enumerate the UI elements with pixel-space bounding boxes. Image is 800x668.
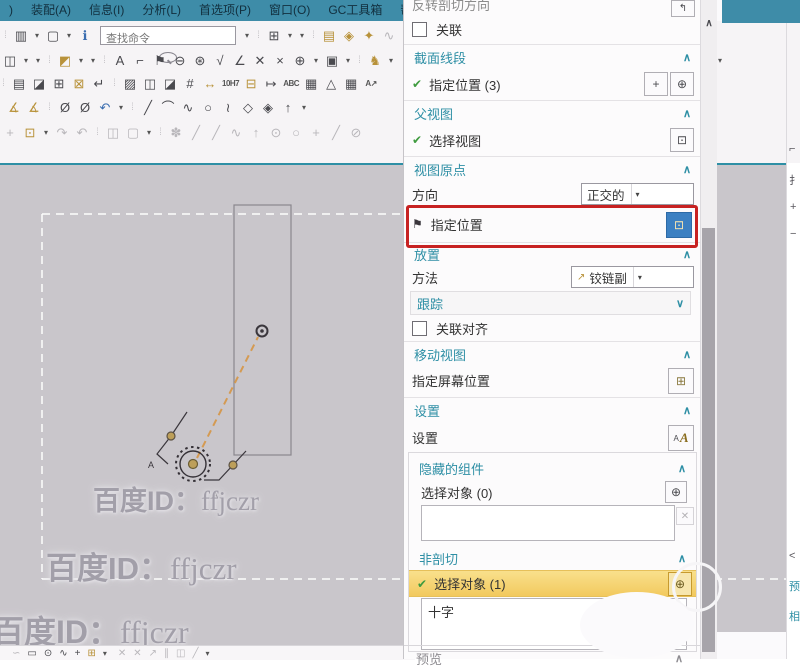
edge-divider bbox=[786, 23, 787, 659]
tag-icon[interactable]: ◈ bbox=[341, 25, 357, 46]
watermark-id: ffjczr bbox=[170, 551, 237, 586]
flag-icon: ⚑ bbox=[412, 217, 423, 231]
circle-dot-icon[interactable]: ⊙ bbox=[44, 648, 52, 659]
associate-align-label: 关联对齐 bbox=[436, 319, 488, 338]
edge-icon[interactable]: 扌 bbox=[789, 172, 800, 188]
specify-screen-position-label: 指定屏幕位置 bbox=[412, 371, 490, 390]
section-title: 隐藏的组件 bbox=[419, 459, 484, 478]
toolbar-icon: ⁞ bbox=[101, 50, 108, 71]
toolbar-icon[interactable]: ▾ bbox=[145, 122, 153, 143]
collapse-chevron-icon[interactable]: ∧ bbox=[683, 404, 691, 417]
undo-icon[interactable]: ↶ bbox=[97, 97, 113, 118]
copy-view-icon[interactable]: ◫ bbox=[105, 122, 121, 143]
point-icon[interactable]: ⊕ bbox=[292, 50, 308, 71]
toolbar-icon[interactable]: ▾ bbox=[42, 122, 50, 143]
section-header-move-view[interactable]: 移动视图 ∧ bbox=[404, 341, 701, 366]
reverse-direction-button[interactable]: ↰ bbox=[671, 0, 695, 17]
polygon-icon[interactable]: ◇ bbox=[240, 97, 256, 118]
section-header-parent-view[interactable]: 父视图 ∧ bbox=[404, 100, 701, 125]
balloon-grid-icon[interactable]: ⊞ bbox=[51, 73, 67, 94]
offset-icon[interactable]: ╱ bbox=[192, 648, 198, 659]
section-header-settings[interactable]: 设置 ∧ bbox=[404, 397, 701, 422]
menu-item[interactable]: 信息(I) bbox=[80, 0, 133, 21]
specify-location-row: ⚑ 指定位置 ⊡ bbox=[404, 208, 701, 240]
menu-item[interactable]: ) bbox=[0, 0, 22, 21]
watermark-id: ffjczr bbox=[201, 486, 259, 516]
toolbar-icon: ⁞ bbox=[255, 25, 262, 46]
toolbar-icon[interactable]: ▾ bbox=[344, 50, 352, 71]
snap-endpoint-icon[interactable]: ╱ bbox=[188, 122, 204, 143]
toolbar-icon[interactable]: ▾ bbox=[117, 97, 125, 118]
zoom-out-icon[interactable]: ⊖ bbox=[172, 50, 188, 71]
method-dropdown[interactable]: ↗ 铰链副 ▾ bbox=[571, 266, 694, 288]
section-title: 截面线段 bbox=[414, 48, 466, 67]
toolbar-icon: ⁞ bbox=[356, 50, 363, 71]
collapse-chevron-icon[interactable]: ∧ bbox=[678, 552, 686, 565]
toolbar-icon: ⁞ bbox=[94, 122, 101, 143]
diameter-icon[interactable]: Ø bbox=[57, 97, 73, 118]
edge-icon[interactable]: − bbox=[790, 228, 800, 240]
collapse-left-icon[interactable]: < bbox=[789, 550, 800, 562]
spline-icon[interactable]: ≀ bbox=[220, 97, 236, 118]
toolbar-row-4: ∡∡⁞ØØ↶▾⁞╱⌒∿○≀◇◈↑▾ bbox=[6, 96, 308, 119]
point-constructor-button[interactable]: ⊕ bbox=[670, 72, 694, 96]
text-icon[interactable]: A bbox=[112, 50, 128, 71]
nx-application-window: { "colors":{"accent_teal":"#2e8fa5","men… bbox=[0, 0, 800, 659]
section-header-view-origin[interactable]: 视图原点 ∧ bbox=[404, 156, 701, 181]
scroll-up-icon[interactable]: ∧ bbox=[701, 18, 717, 29]
edge-icon[interactable]: + bbox=[790, 201, 800, 213]
leader-text-icon[interactable]: A↗ bbox=[363, 73, 379, 94]
redo-rotate-icon[interactable]: ↷ bbox=[54, 122, 70, 143]
component-icon[interactable]: ◩ bbox=[57, 50, 73, 71]
fastener-icon[interactable]: ⌐ bbox=[132, 50, 148, 71]
collapse-chevron-icon[interactable]: ∧ bbox=[675, 652, 683, 665]
method-row: 方法 ↗ 铰链副 ▾ bbox=[404, 264, 701, 290]
reverse-direction-label: 反转剖切方向 bbox=[412, 0, 490, 14]
font-icon-small: A bbox=[673, 434, 678, 443]
mirror-icon[interactable]: ◫ bbox=[176, 648, 185, 659]
collapse-chevron-icon[interactable]: ∧ bbox=[683, 348, 691, 361]
slope-dim-icon[interactable]: ∡ bbox=[6, 97, 22, 118]
section-header-placement[interactable]: 放置 ∧ bbox=[404, 242, 701, 265]
toolbar-icon[interactable]: ▾ bbox=[300, 97, 308, 118]
trim-icon[interactable]: × bbox=[272, 50, 288, 71]
section-title: 父视图 bbox=[414, 104, 453, 123]
shaded-view-icon[interactable]: ◪ bbox=[31, 73, 47, 94]
info-tag-icon[interactable]: ℹ bbox=[77, 25, 93, 46]
select-view-label: 选择视图 bbox=[429, 131, 481, 150]
section-header-hidden-components[interactable]: 隐藏的组件 ∧ bbox=[409, 456, 696, 480]
chevron-down-icon: ▾ bbox=[633, 267, 646, 287]
chevron-down-icon: ▾ bbox=[631, 184, 644, 204]
select-object-1-label: 选择对象 (1) bbox=[434, 574, 506, 593]
undo-rotate-icon[interactable]: ↶ bbox=[74, 122, 90, 143]
base-view-icon[interactable]: ◫ bbox=[142, 73, 158, 94]
linear-dim-icon[interactable]: ↔ bbox=[202, 73, 218, 94]
select-object-0-row: 选择对象 (0) ⊕ bbox=[409, 479, 696, 505]
toolbar-row-5: +⊡▾↷↶⁞◫▢▾⁞✽╱╱∿↑⊙○+╱⊘ bbox=[2, 121, 364, 144]
parallel-icon[interactable]: ∥ bbox=[164, 648, 169, 659]
select-object-1-button[interactable]: ⊕ bbox=[668, 572, 692, 596]
layers-icon[interactable]: ▤ bbox=[321, 25, 337, 46]
select-view-row: ✔ 选择视图 ⊡ bbox=[404, 126, 701, 154]
preview-row-cut: 预览 ∧ bbox=[404, 648, 701, 668]
panel-divider bbox=[404, 645, 701, 646]
dropdown-arrow-icon[interactable]: ▾ bbox=[65, 25, 73, 46]
snap-circle-icon[interactable]: ○ bbox=[288, 122, 304, 143]
corner-arrow-icon[interactable]: ↵ bbox=[91, 73, 107, 94]
zoom-help-icon[interactable]: ⊛ bbox=[192, 50, 208, 71]
menu-item[interactable]: 窗口(O) bbox=[260, 0, 319, 21]
plane-icon[interactable]: ◈ bbox=[260, 97, 276, 118]
toolbar-icon[interactable]: ▾ bbox=[286, 25, 294, 46]
toolbar-icon[interactable]: ▾ bbox=[89, 50, 97, 71]
toolbar-icon[interactable]: ▾ bbox=[34, 50, 42, 71]
select-view-button[interactable]: ⊡ bbox=[670, 128, 694, 152]
studio-spline-icon[interactable]: ∿ bbox=[59, 648, 67, 659]
note-text-icon[interactable]: ABC bbox=[283, 73, 299, 94]
image-icon[interactable]: ▣ bbox=[324, 50, 340, 71]
command-finder bbox=[100, 26, 236, 45]
pattern-icon[interactable]: ▥ bbox=[13, 25, 29, 46]
anchor-points bbox=[167, 432, 237, 469]
select-object-0-label: 选择对象 (0) bbox=[417, 483, 493, 502]
line-icon[interactable]: ╱ bbox=[140, 97, 156, 118]
project-icon[interactable]: ↗ bbox=[149, 648, 157, 659]
specify-position-row: ✔ 指定位置 (3) + ⊕ bbox=[404, 70, 701, 98]
search-input[interactable] bbox=[104, 32, 250, 46]
check-icon: ✔ bbox=[412, 77, 422, 91]
hinge-line bbox=[197, 337, 258, 458]
booklet-icon[interactable]: ▤ bbox=[11, 73, 27, 94]
reverse-direction-row: 反转剖切方向 ↰ bbox=[404, 0, 701, 14]
section-title: 移动视图 bbox=[414, 345, 466, 364]
dialog-scrollbar[interactable]: ∧ bbox=[700, 0, 717, 659]
collapse-chevron-icon[interactable]: ∧ bbox=[683, 107, 691, 120]
hidden-components-list[interactable] bbox=[421, 505, 675, 541]
stamp-icon[interactable]: ⊠ bbox=[71, 73, 87, 94]
toolbar-icon: ⁞ bbox=[111, 73, 118, 94]
datum-icon[interactable]: ⊟ bbox=[243, 73, 259, 94]
menu-item[interactable]: 首选项(P) bbox=[190, 0, 260, 21]
direction-label: 方向 bbox=[412, 185, 438, 204]
table-icon[interactable]: ▦ bbox=[343, 73, 359, 94]
snap-tangent-icon[interactable]: ╱ bbox=[328, 122, 344, 143]
collapse-chevron-icon[interactable]: ∧ bbox=[678, 462, 686, 475]
method-value: 铰链副 bbox=[589, 268, 627, 287]
toolbar-icon[interactable]: ▾ bbox=[103, 649, 111, 658]
angle-icon[interactable]: ∠ bbox=[232, 50, 248, 71]
associate-label: 关联 bbox=[436, 20, 462, 39]
dropdown-arrow-icon[interactable]: ▾ bbox=[243, 25, 251, 46]
toolbar-row-1: ⁞▥▾▢▾ℹ ▾⁞⊞▾▾⁞▤◈✦∿ bbox=[2, 24, 397, 47]
associate-row: 关联 bbox=[404, 16, 701, 42]
toolbar-icon: ⁞ bbox=[157, 122, 164, 143]
direction-row: 方向 正交的 ▾ bbox=[404, 182, 701, 206]
toolbar-icon[interactable]: ▾ bbox=[298, 25, 306, 46]
toolbar-icon: ⁞ bbox=[129, 97, 136, 118]
normal-icon[interactable]: ↑ bbox=[280, 97, 296, 118]
toolbar-icon: ⁞ bbox=[46, 97, 53, 118]
select-object-1-row[interactable]: ✔ 选择对象 (1) ⊕ bbox=[409, 570, 696, 597]
non-sectioned-list[interactable]: 十字 bbox=[421, 598, 687, 650]
delete-icon[interactable]: ✕ bbox=[252, 50, 268, 71]
canvas-bottom-gap bbox=[717, 632, 786, 659]
flag-note-icon[interactable]: ⚑ bbox=[152, 50, 168, 71]
font-icon-italic: A bbox=[680, 430, 689, 446]
section-title: 视图原点 bbox=[414, 160, 466, 179]
collapse-chevron-icon[interactable]: ∧ bbox=[678, 625, 686, 638]
toolbar-icon: ⁞ bbox=[46, 50, 53, 71]
arc-icon[interactable]: ⌒ bbox=[160, 97, 176, 118]
gear-symbol bbox=[176, 447, 210, 481]
snap-pole-icon[interactable]: ↑ bbox=[248, 122, 264, 143]
toolbar-icon[interactable]: ▾ bbox=[77, 50, 85, 71]
section-title: 放置 bbox=[414, 245, 440, 264]
watermark: 百度ID：ffjczr bbox=[46, 543, 237, 588]
datum-triangle-icon[interactable]: △ bbox=[323, 73, 339, 94]
menu-item[interactable]: 装配(A) bbox=[22, 0, 80, 21]
taper-dim-icon[interactable]: ∡ bbox=[26, 97, 42, 118]
specify-location-label: 指定位置 bbox=[431, 215, 483, 234]
snap-midpoint-icon[interactable]: ╱ bbox=[208, 122, 224, 143]
diameter-symbol-icon[interactable]: Ø bbox=[77, 97, 93, 118]
grid-icon[interactable]: ▦ bbox=[303, 73, 319, 94]
key-icon[interactable]: ✦ bbox=[361, 25, 377, 46]
collapse-chevron-icon[interactable]: ∧ bbox=[683, 163, 691, 176]
scrollbar-thumb[interactable] bbox=[702, 228, 715, 652]
section-header-non-sectioned[interactable]: 非剖切 ∧ bbox=[409, 547, 696, 569]
titlebar-corner bbox=[722, 1, 800, 23]
section-header-segments[interactable]: 截面线段 ∧ bbox=[404, 44, 701, 69]
toolbar-row-3: ⁞▤◪⊞⊠↵⁞▨◫◪#↔10H7⊟↦ABC▦△▦A↗ bbox=[0, 72, 379, 95]
dimension-grid-icon[interactable]: # bbox=[182, 73, 198, 94]
direction-value: 正交的 bbox=[587, 185, 625, 204]
intersect2-icon[interactable]: ✕ bbox=[133, 648, 141, 659]
method-label: 方法 bbox=[412, 268, 438, 287]
check-icon[interactable]: √ bbox=[212, 50, 228, 71]
direction-dropdown[interactable]: 正交的 ▾ bbox=[581, 183, 694, 205]
snap-intersection-icon[interactable]: + bbox=[308, 122, 324, 143]
section-view-dialog: 反转剖切方向 ↰ 关联 截面线段 ∧ ✔ 指定位置 (3) + ⊕ 父视图 ∧ … bbox=[403, 0, 701, 659]
color-swatch-icon[interactable]: ▢ bbox=[45, 25, 61, 46]
settings-label: 设置 bbox=[412, 428, 438, 447]
animal-icon[interactable]: ♞ bbox=[367, 50, 383, 71]
section-title: 设置 bbox=[414, 401, 440, 420]
dropdown-arrow-icon[interactable]: ▾ bbox=[33, 25, 41, 46]
specify-position-label: 指定位置 (3) bbox=[429, 75, 501, 94]
circle-icon[interactable]: ○ bbox=[200, 97, 216, 118]
snap-center-icon[interactable]: ⊙ bbox=[268, 122, 284, 143]
move-icon[interactable]: + bbox=[2, 122, 18, 143]
list-item[interactable]: 十字 bbox=[428, 605, 454, 620]
toolbar-icon: ⁞ bbox=[310, 25, 317, 46]
settings-row: 设置 AA bbox=[404, 423, 701, 451]
associate-align-row: 关联对齐 bbox=[404, 315, 701, 341]
snap-point-icon[interactable]: ✽ bbox=[168, 122, 184, 143]
toolbar-icon: ⁞ bbox=[2, 25, 9, 46]
track-label: 跟踪 bbox=[417, 294, 443, 313]
toolbar-icon[interactable]: ▾ bbox=[206, 649, 214, 658]
track-expander[interactable]: 跟踪 ∨ bbox=[410, 291, 691, 315]
toolbar-icon[interactable]: ▾ bbox=[22, 50, 30, 71]
split-window-icon[interactable]: ◫ bbox=[2, 50, 18, 71]
sketch-toolbar: ∽▭⊙∿+⊞▾✕✕↗∥◫╱▾ bbox=[0, 645, 415, 660]
clear-list-button[interactable]: ✕ bbox=[676, 507, 694, 525]
toolbar-icon: ⁞ bbox=[0, 73, 7, 94]
watermark-prefix: 百度ID： bbox=[46, 551, 170, 586]
watermark: 百度ID：ffjczr bbox=[93, 479, 259, 518]
point-dialog-button[interactable]: + bbox=[644, 72, 668, 96]
top-target-symbol bbox=[257, 326, 268, 337]
watermark-prefix: 百度ID： bbox=[93, 486, 201, 516]
specify-screen-position-button[interactable]: ⊞ bbox=[668, 368, 694, 394]
select-object-0-button[interactable]: ⊕ bbox=[665, 481, 687, 503]
settings-group-box: 隐藏的组件 ∧ 选择对象 (0) ⊕ ✕ 非剖切 ∧ ✔ 选择对象 (1) ⊕ … bbox=[408, 452, 697, 652]
hatch-section-icon[interactable]: ▨ bbox=[122, 73, 138, 94]
sketch-box-icon[interactable]: ⊡ bbox=[22, 122, 38, 143]
collapse-chevron-icon[interactable]: ∧ bbox=[683, 248, 691, 261]
polyline-icon[interactable]: ∿ bbox=[180, 97, 196, 118]
expand-chevron-icon: ∨ bbox=[676, 297, 684, 310]
preview-label: 预览 bbox=[412, 649, 442, 668]
snap-curve-icon[interactable]: ∿ bbox=[228, 122, 244, 143]
toolbar-icon[interactable]: ▾ bbox=[312, 50, 320, 71]
curve-icon[interactable]: ∽ bbox=[12, 648, 20, 659]
selection-rect-icon[interactable]: ▢ bbox=[125, 122, 141, 143]
intersect-icon[interactable]: ✕ bbox=[118, 648, 126, 659]
window-layout-icon[interactable]: ⊞ bbox=[266, 25, 282, 46]
collapse-chevron-icon[interactable]: ∧ bbox=[683, 51, 691, 64]
edge-icon[interactable]: ⌐ bbox=[789, 143, 800, 155]
font-settings-button[interactable]: AA bbox=[668, 425, 694, 451]
check-icon: ✔ bbox=[412, 133, 422, 147]
section-title: 非剖切 bbox=[419, 549, 458, 568]
dropdown-arrow-icon[interactable]: ▾ bbox=[718, 56, 722, 65]
hinge-icon: ↗ bbox=[577, 272, 585, 283]
associate-checkbox[interactable] bbox=[412, 22, 427, 37]
associate-align-checkbox[interactable] bbox=[412, 321, 427, 336]
snap-quadrant-icon[interactable]: ⊘ bbox=[348, 122, 364, 143]
toolbar-row-2: ◫▾▾⁞◩▾▾⁞A⌐⚑⊖⊛√∠✕×⊕▾▣▾⁞♞▾ bbox=[2, 49, 395, 72]
preview-tab-glyph[interactable]: 预 bbox=[789, 578, 800, 594]
cut-icon[interactable]: ∿ bbox=[381, 25, 397, 46]
specify-screen-position-row: 指定屏幕位置 ⊞ bbox=[404, 366, 701, 394]
partial-view-icon[interactable]: ◪ bbox=[162, 73, 178, 94]
ordinate-dim-icon[interactable]: ↦ bbox=[263, 73, 279, 94]
fit-tolerance-icon[interactable]: 10H7 bbox=[222, 73, 239, 94]
menu-item[interactable]: 分析(L) bbox=[133, 0, 190, 21]
menu-item[interactable]: GC工具箱 bbox=[319, 0, 391, 21]
check-icon: ✔ bbox=[417, 577, 427, 591]
point-plus-icon[interactable]: + bbox=[75, 648, 81, 659]
sketch-icon[interactable]: ⊞ bbox=[87, 648, 95, 659]
leader-lines bbox=[157, 412, 246, 480]
toolbar-icon[interactable]: ▾ bbox=[387, 50, 395, 71]
rectangle-icon[interactable]: ▭ bbox=[27, 648, 36, 659]
view-label-a1: A bbox=[148, 460, 154, 470]
specify-location-button[interactable]: ⊡ bbox=[666, 212, 692, 238]
material-tab-glyph[interactable]: 相 bbox=[789, 608, 800, 624]
